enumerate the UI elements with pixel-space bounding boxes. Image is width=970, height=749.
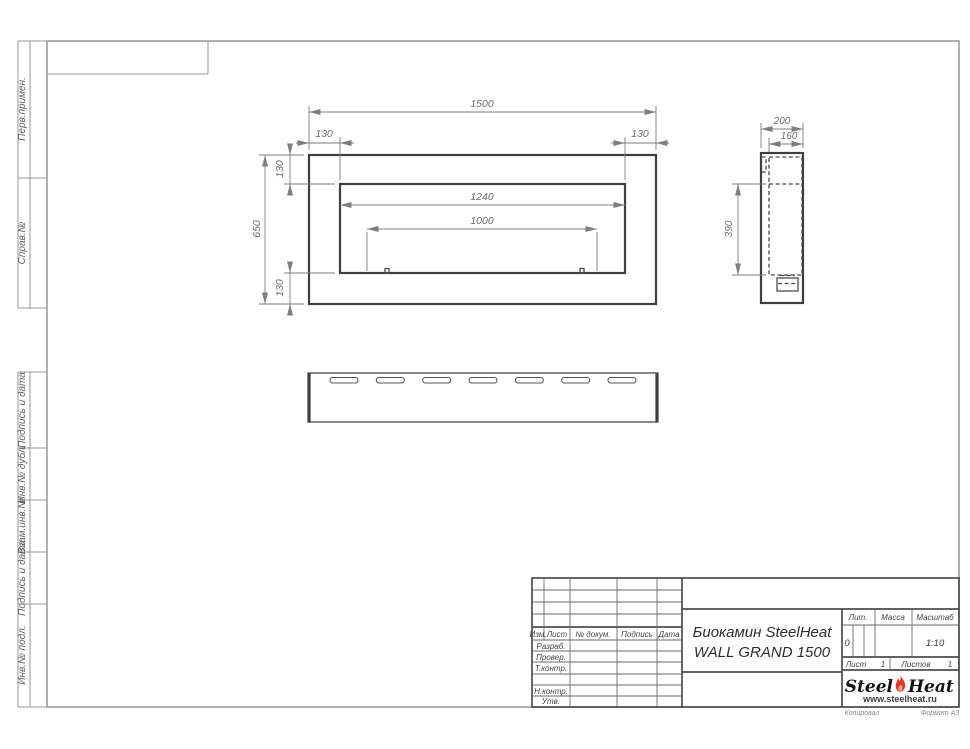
dim-inner-depth: 160 (781, 131, 798, 142)
stamp-col-dokum: № докум. (575, 630, 610, 639)
stamp-row-nkontr: Н.контр. (534, 687, 568, 696)
vent-slots (330, 378, 636, 384)
sheets-value: 1 (948, 660, 952, 669)
side-view (761, 153, 803, 303)
margin-label-podpis-data-1: Подпись и дата (17, 372, 28, 448)
margin-label-perv-primen: Перв.примен. (17, 77, 28, 141)
margin-label-podpis-data-2: Подпись и дата (17, 540, 28, 616)
front-view-dimensions: 1500 130 130 1240 1000 650 130 130 (251, 98, 669, 310)
document-title-line2: WALL GRAND 1500 (694, 644, 831, 661)
dim-top-offset-left: 130 (315, 128, 333, 140)
stamp-row-razrab: Разраб. (537, 642, 566, 651)
steelheat-logo: Steel Heat www.steelheat.ru (845, 675, 954, 704)
stamp-col-list: Лист (546, 630, 568, 639)
document-title-line1: Биокамин SteelHeat (693, 624, 833, 641)
burner-box (777, 278, 798, 291)
bottom-view (308, 373, 658, 422)
dim-overall-height: 650 (251, 220, 263, 238)
stamp-col-data: Дата (657, 630, 680, 639)
margin-label-inv-dubl: Инв.№ дубл. (16, 445, 28, 504)
format-label: Формат А3 (921, 710, 959, 717)
dim-burner-width: 1000 (470, 215, 494, 227)
stamp-row-prover: Провер. (536, 653, 566, 662)
mount-bracket (762, 157, 767, 172)
margin-label-sprav-no: Справ.№ (17, 221, 28, 264)
stamp-col-podpis: Подпись (621, 630, 653, 639)
lit-value: 0 (844, 638, 850, 649)
technical-drawing: Перв.примен. Справ.№ Подпись и дата Инв.… (0, 0, 970, 749)
sheets-label: Листов (900, 660, 930, 669)
stamp-row-utv: Утв. (541, 697, 560, 706)
dim-opening-width: 1240 (470, 191, 494, 203)
dim-depth: 200 (773, 116, 791, 127)
dim-overall-width: 1500 (470, 98, 494, 110)
stamp-row-tkontr: Т.контр. (535, 664, 567, 673)
scale-value: 1:10 (926, 638, 945, 649)
logo-url: www.steelheat.ru (862, 694, 937, 704)
title-block: Изм. Лист № докум. Подпись Дата Разраб. … (529, 578, 959, 707)
copied-label: Копировал (845, 710, 880, 717)
left-margin-columns: Перв.примен. Справ.№ Подпись и дата Инв.… (16, 41, 47, 707)
scale-label: Масштаб (916, 613, 954, 622)
front-view (309, 155, 656, 304)
dim-top-offset-right: 130 (631, 128, 649, 140)
sheet-value: 1 (881, 660, 885, 669)
dim-side-offset-top: 130 (274, 160, 286, 178)
margin-label-inv-podl: Инв.№ подл. (17, 625, 28, 684)
dim-opening-height: 390 (724, 220, 735, 237)
lit-label: Лит. (848, 613, 868, 622)
stamp-col-izm: Изм. (529, 630, 546, 639)
side-view-dimensions: 200 160 390 (724, 116, 803, 275)
mass-label: Масса (881, 613, 905, 622)
sheet-label: Лист (845, 660, 867, 669)
flame-icon (896, 675, 905, 692)
dim-side-offset-bottom: 130 (274, 279, 286, 297)
drawing-sheet: Перв.примен. Справ.№ Подпись и дата Инв.… (0, 0, 970, 749)
sheet-frame (47, 41, 959, 707)
